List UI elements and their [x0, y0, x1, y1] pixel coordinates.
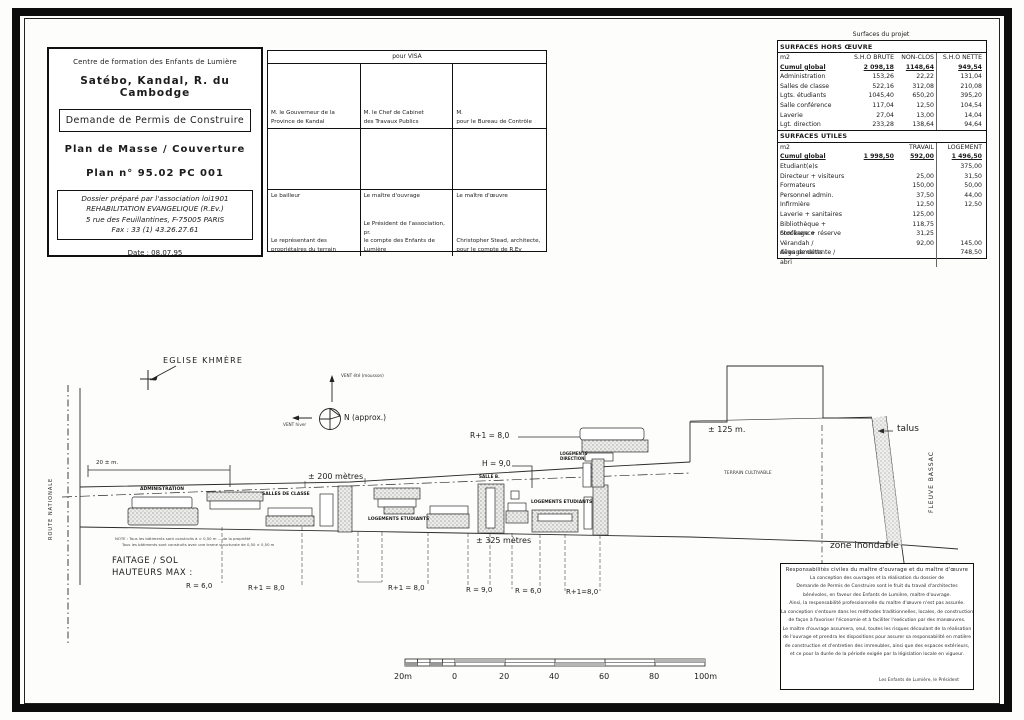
label-vent-ete: VENT été (mousson)	[341, 373, 384, 378]
label-dim-125m: ± 125 m.	[708, 425, 745, 434]
label-eglise-khmere: EGLISE KHMÈRE	[163, 356, 243, 365]
plan-sheet: Centre de formation des Enfants de Lumiè…	[0, 0, 1024, 720]
church-cross-icon	[140, 366, 176, 390]
label-r1-8-top: R+1 = 8,0	[470, 431, 509, 440]
label-dim-20m: 20 ± m.	[96, 460, 118, 466]
height-leaders	[222, 527, 600, 591]
label-terrain-cultivable: TERRAIN CULTIVABLE	[724, 471, 772, 476]
scale-label: 80	[649, 672, 659, 681]
scale-label: 100m	[694, 672, 717, 681]
label-height-r1-8: R+1 = 8,0	[248, 584, 285, 592]
scale-label: 60	[599, 672, 609, 681]
label-height-r9: R = 9,0	[466, 586, 492, 594]
scale-label: 20m	[394, 672, 412, 681]
label-height-r6: R = 6,0	[186, 582, 212, 590]
note-line: NOTE : Tous les bâtiments sont construit…	[115, 536, 250, 541]
scale-label: 20	[499, 672, 509, 681]
label-salles-de-classe: SALLES DE CLASSE	[262, 492, 310, 497]
label-vent-hiver: VENT hiver	[283, 422, 306, 427]
label-north: N (approx.)	[344, 413, 386, 422]
label-h-9: H = 9,0	[482, 459, 511, 468]
label-salle-b: SALLE B.	[479, 474, 500, 479]
label-height-r1-8: R+1 = 8,0	[388, 584, 425, 592]
label-logements-etudiants: LOGEMENTS ETUDIANTS	[368, 517, 429, 522]
scale-label: 0	[452, 672, 457, 681]
responsibility-block: Responsabilités civiles du maître d'ouvr…	[780, 563, 974, 690]
scale-label: 40	[549, 672, 559, 681]
note-line: Tous les bâtiments sont construits avec …	[122, 542, 274, 547]
responsibility-signature: Les Enfants de Lumière, le Président	[879, 678, 959, 683]
label-talus: talus	[897, 424, 919, 434]
label-zone-inondable: zone inondable	[830, 541, 899, 551]
scale-bar	[405, 659, 705, 666]
label-dim-325m: ± 325 mètres	[476, 536, 531, 545]
label-logement-direction: LOGEMENTS DIRECTION	[560, 451, 588, 461]
responsibility-text: La conception des ouvrages et la réalisa…	[781, 575, 973, 660]
label-administration: ADMINISTRATION	[140, 487, 184, 492]
label-dim-200m: ± 200 mètres	[308, 472, 363, 481]
label-height-r1-8: R+1=8,0	[566, 588, 598, 596]
label-faitage-hauteurs: FAITAGE / SOL HAUTEURS MAX :	[112, 556, 193, 580]
label-height-r6: R = 6,0	[515, 587, 541, 595]
label-logements-etudiants: LOGEMENTS ETUDIANTS	[531, 500, 592, 505]
label-fleuve-bassac: FLEUVE BASSAC	[928, 418, 935, 513]
responsibility-title: Responsabilités civiles du maître d'ouvr…	[781, 567, 973, 573]
label-route-nationale: ROUTE NATIONALE	[48, 440, 54, 540]
